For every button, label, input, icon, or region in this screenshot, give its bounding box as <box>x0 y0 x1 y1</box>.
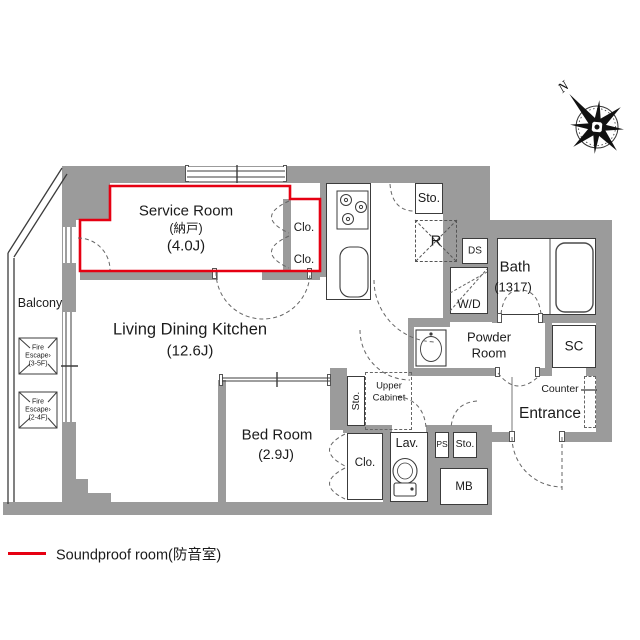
jamb <box>307 268 312 279</box>
wall-left <box>62 166 76 510</box>
sc-label: SC <box>565 339 584 354</box>
legend-soundproof-label: Soundproof room(防音室) <box>56 544 221 565</box>
wd-label: W/D <box>457 297 480 311</box>
wall-nook-left <box>408 327 414 376</box>
upper-cabinet-label-1: Upper <box>376 381 402 392</box>
ps-label: PS <box>436 439 447 449</box>
kitchen-counter <box>326 183 371 300</box>
closet2-label: Clo. <box>294 254 314 266</box>
fire-escape-2-line3: (2-4F) <box>28 415 47 422</box>
bedroom-size: (2.9J) <box>258 446 294 462</box>
wall-step-b <box>88 493 111 503</box>
fire-escape-1-line1: Fire <box>32 345 44 352</box>
ldk-size: (12.6J) <box>167 343 214 360</box>
wall-bedroom-left <box>218 380 226 502</box>
fire-escape-1-line2: Escape› <box>25 353 51 360</box>
wall-powder-bottom-m <box>538 368 552 376</box>
wall-top <box>62 166 490 183</box>
balcony-label: Balcony <box>18 296 62 310</box>
jamb <box>327 374 331 386</box>
wall-bath-wd <box>488 238 497 315</box>
counter-label: Counter <box>541 383 578 395</box>
entrance-counter <box>584 376 596 428</box>
jamb <box>219 374 223 386</box>
wall-ne-block <box>443 183 490 220</box>
jamb <box>212 268 217 279</box>
wall-service-bottom-l <box>80 271 218 280</box>
bedroom-partition <box>222 372 330 387</box>
jamb <box>535 367 540 377</box>
fire-escape-2-line1: Fire <box>32 399 44 406</box>
wall-corridor-left <box>330 368 347 430</box>
balcony-outline <box>8 168 67 504</box>
service-room-size: (4.0J) <box>167 238 205 255</box>
wall-wd-bottom <box>443 313 497 322</box>
bath-room <box>497 238 596 315</box>
entrance-label: Entrance <box>519 405 581 423</box>
ds-label: DS <box>468 246 482 257</box>
washbasin-icon <box>416 330 446 366</box>
wall-bath-top <box>457 220 612 238</box>
jamb <box>538 313 543 323</box>
ldk-label: Living Dining Kitchen <box>113 321 267 340</box>
bedroom-closet-label: Clo. <box>355 457 375 469</box>
jamb <box>497 313 502 323</box>
fire-escape-2-line2: Escape› <box>25 407 51 414</box>
bath-label: Bath <box>500 259 531 276</box>
mb-label: MB <box>455 481 472 493</box>
wall-right <box>596 238 612 442</box>
lavatory-label: Lav. <box>396 436 419 450</box>
closet1-label: Clo. <box>294 222 314 234</box>
jamb <box>283 165 287 182</box>
jamb <box>495 367 500 377</box>
compass-icon: N <box>530 57 640 181</box>
powder-room-label-2: Room <box>472 346 507 361</box>
jamb <box>185 165 189 182</box>
jamb <box>559 431 565 442</box>
wall-service-closet <box>283 199 291 271</box>
bedroom-label: Bed Room <box>242 427 313 444</box>
compass-north-label: N <box>555 78 573 97</box>
wall-closet-lav <box>383 433 390 502</box>
legend-soundproof-line <box>8 552 46 555</box>
wall-powder-bottom-r <box>586 368 612 376</box>
sto-small-label: Sto. <box>456 438 475 450</box>
wall-sc-left <box>545 322 552 368</box>
sto-top-label: Sto. <box>418 191 440 205</box>
wall-powder-bottom-l <box>408 368 498 376</box>
wall-bottom <box>3 502 492 515</box>
powder-room-label-1: Powder <box>467 330 511 345</box>
sto-mid-label: Sto. <box>350 392 362 411</box>
service-room-sub: (納戸) <box>169 218 202 237</box>
bath-size: (1317) <box>494 280 532 295</box>
floor-plan: N Service Room (納戸) (4.0J) Clo. Clo. Liv… <box>0 0 640 640</box>
wall-entry-bottom-r <box>562 432 612 442</box>
refrigerator-label: R <box>431 233 442 250</box>
wall-step-a <box>76 479 88 503</box>
jamb <box>509 431 515 442</box>
upper-cabinet-label-2: Cabinet <box>373 393 406 404</box>
wall-service-left <box>76 183 110 220</box>
fire-escape-1-line3: (3-5F) <box>28 361 47 368</box>
